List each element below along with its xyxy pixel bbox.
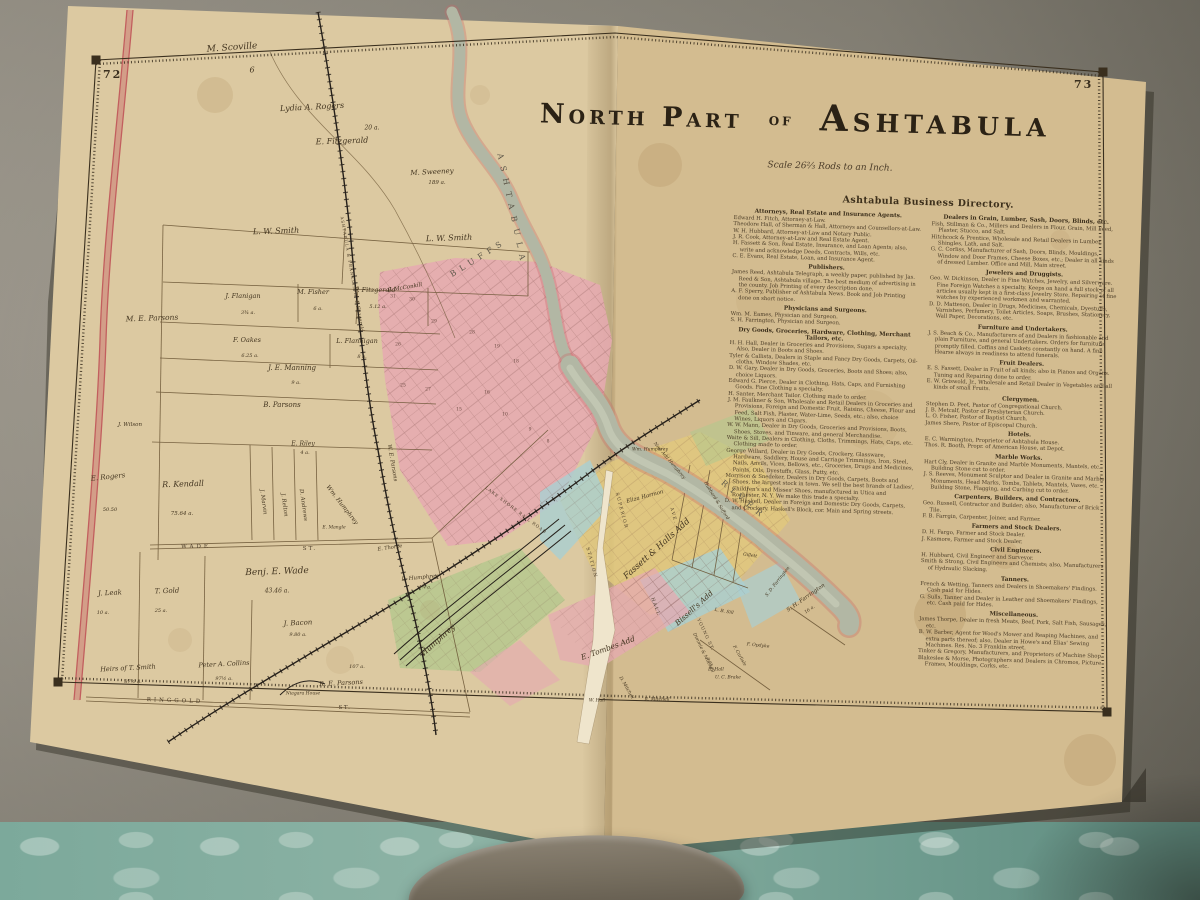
map-label: 107 a. [349,664,365,670]
map-label: 9 [529,428,532,433]
map-label: 87½ a. [124,679,141,685]
map-label: 4¾ a. [419,586,432,591]
business-directory: Ashtabula Business Directory. Attorneys,… [720,191,1123,673]
map-label: 18 [513,360,519,365]
map-label: 10 [502,413,508,418]
map-label: J. Bacon [283,618,312,627]
photo-of-antique-map: 72 73 North PartofAshtabula Scale 26⅔ Ro… [0,0,1200,900]
map-label: 25 a. [155,608,168,614]
map-label: 6 [249,66,254,75]
map-label: 28 [469,331,475,336]
map-label: E. Hall [708,668,724,673]
map-label: L. Flannigan [336,337,378,345]
map-label: T. Gold [155,587,180,596]
map-label: 6.25 a. [241,353,258,359]
map-label: E. Mangle [322,526,345,531]
directory-column-right: Dealers in Grain, Lumber, Sash, Doors, B… [918,211,1121,673]
photo-corner-shadow [980,750,1200,900]
map-label: 97½ a. [215,676,232,682]
map-label: 4 a. [300,450,309,456]
title-ashtabula: Ashtabula [819,97,1051,145]
map-label: 10 a. [97,610,110,616]
map-label: R. Kendall [162,479,204,489]
map-label: 8 [547,440,550,445]
map-label: 19 [494,345,500,350]
map-label: M. E. Parsons [126,313,179,324]
map-label: 16 [484,391,490,396]
map-label: J. E. Manning [268,364,316,372]
map-label: 9 a. [291,380,300,386]
map-label: 20 a. [364,125,379,132]
map-label: J. Wilson [118,422,142,428]
map-label: B. Parsons [263,401,300,409]
map-label: 27 [425,388,431,393]
map-label: WADE [181,544,211,550]
map-label: 29 [431,320,437,325]
map-label: E. Fitzgerald [316,136,369,147]
map-label: 43.46 a. [265,588,290,595]
map-label: 9.80 a. [289,632,306,638]
map-label: M. Fisher [297,288,329,296]
title-north-part: North Part [540,98,744,135]
map-label: 6 a. [313,306,322,312]
page-number-right: 73 [1074,78,1093,91]
map-label: 189 a. [428,180,445,186]
map-label: U. C. Brake [715,676,741,681]
map-label: L. W. Smith [426,233,473,244]
map-label: 3¾ a. [241,310,255,316]
directory-columns: Attorneys, Real Estate and Insurance Age… [720,205,1122,673]
map-label: F. Oakes [233,336,261,344]
map-label: 30 [409,298,415,303]
title-of: of [768,110,794,131]
map-label: 75.64 a. [171,511,194,517]
map-label: ST. [339,705,352,711]
map-label: 25 [400,384,406,389]
map-label: 8 a. [357,354,366,360]
map-label: J. Leak [98,588,122,597]
page-number-left: 72 [103,68,122,81]
map-label: J. Flanigan [225,292,260,300]
map-label: 26 [395,343,401,348]
map-label: 5.12 a. [369,304,386,310]
directory-column-left: Attorneys, Real Estate and Insurance Age… [720,205,923,667]
map-label: Niagara House [286,692,320,697]
map-label: E. Riley [291,441,315,448]
map-label: W. Hall [589,699,605,704]
map-label: L. W. Smith [253,226,300,237]
directory-entry: J. S. Beach & Co., Manufacturers of and … [927,330,1117,361]
map-label: 50.50 [103,507,117,513]
map-label: ST. [303,546,317,552]
map-label: 15 [456,408,462,413]
map-label: 31 [390,295,396,300]
map-label: R. Mitchell [644,698,669,703]
